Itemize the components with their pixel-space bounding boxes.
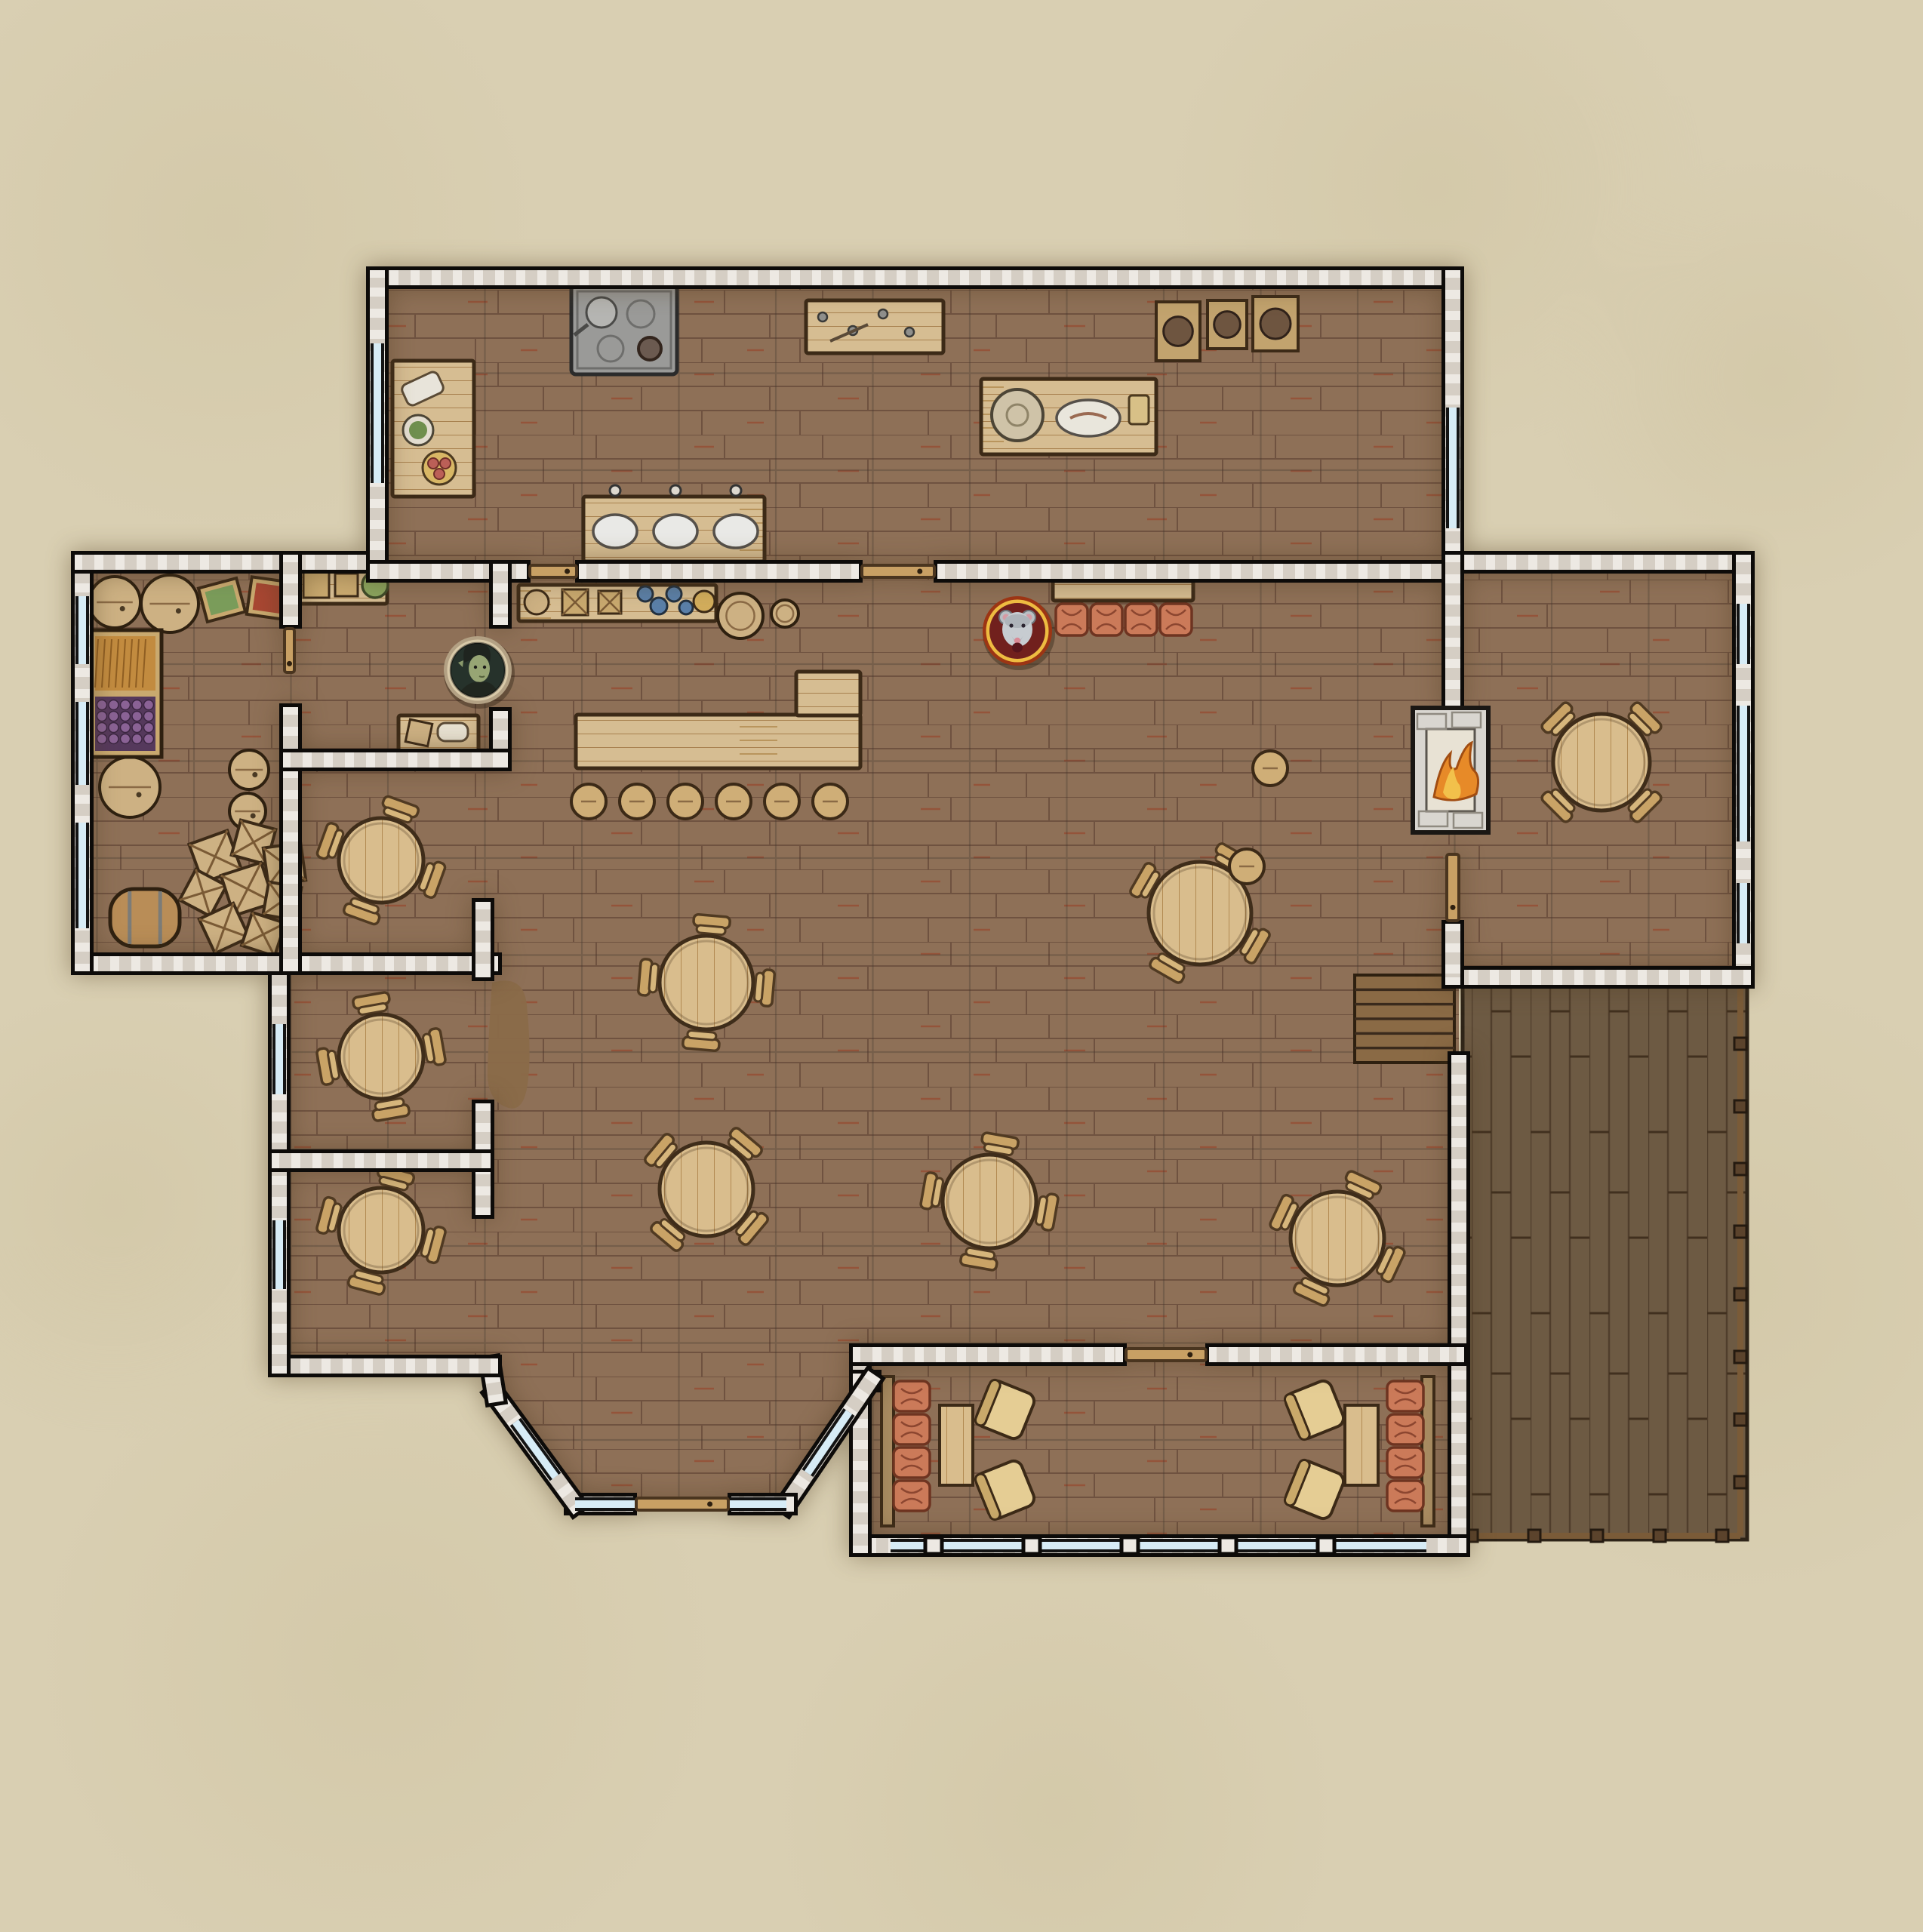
door-handle <box>565 569 570 574</box>
curing-tub <box>1057 400 1120 436</box>
railing-post <box>1734 1414 1746 1426</box>
plum <box>132 712 142 721</box>
deck-floor <box>1463 977 1747 1540</box>
pantry-box <box>405 719 432 746</box>
railing-post <box>1591 1530 1603 1542</box>
stove <box>571 285 677 374</box>
couch-cushion <box>1387 1381 1423 1411</box>
door <box>636 1498 728 1510</box>
round-table <box>1291 1192 1384 1285</box>
railing-post <box>1654 1530 1666 1542</box>
pantry-crate <box>303 572 329 598</box>
dining-table-set <box>1540 701 1663 824</box>
barrel-bung <box>176 608 181 614</box>
couch-cushion <box>894 1414 930 1444</box>
plum <box>121 712 131 721</box>
cushioned-bench <box>1053 581 1193 635</box>
railing-post <box>1734 1476 1746 1488</box>
plum <box>132 723 142 733</box>
sink-knob <box>731 485 741 496</box>
barrel-bung <box>251 814 256 819</box>
porch-post <box>925 1537 942 1554</box>
crate-bowl <box>1164 317 1193 346</box>
wash-basin <box>593 515 637 548</box>
wash-basin <box>654 515 697 548</box>
bar-counter-return <box>796 672 860 715</box>
tool-bit <box>878 309 888 318</box>
plum <box>121 734 131 744</box>
barrel-bung <box>120 606 125 611</box>
round-table <box>943 1155 1036 1248</box>
plum <box>109 723 118 733</box>
stairs-to-deck <box>1355 975 1454 1063</box>
door-handle <box>1451 905 1456 910</box>
plum <box>97 712 107 721</box>
porch-post <box>1318 1537 1334 1554</box>
fireplace <box>1413 708 1488 832</box>
plum <box>144 712 154 721</box>
coffee-table-right <box>1345 1405 1378 1485</box>
railing-post <box>1734 1288 1746 1300</box>
plum <box>97 723 107 733</box>
railing-post <box>1528 1530 1540 1542</box>
door <box>1447 854 1459 921</box>
door-handle <box>707 1502 712 1507</box>
door <box>1126 1349 1206 1361</box>
fruit <box>434 469 445 479</box>
plum <box>121 723 131 733</box>
plum <box>144 734 154 744</box>
crate-bowl <box>1260 309 1291 339</box>
chair <box>638 958 659 996</box>
plum <box>121 700 131 710</box>
sink-knob <box>670 485 681 496</box>
door-handle <box>287 661 292 666</box>
railing-post <box>1734 1351 1746 1363</box>
round-table <box>660 1143 753 1236</box>
bench-cushion <box>1091 604 1122 635</box>
plum <box>97 700 107 710</box>
chair <box>682 1030 720 1051</box>
grindstone <box>992 389 1043 441</box>
porch-post <box>1220 1537 1236 1554</box>
railing-post <box>1734 1163 1746 1175</box>
couch-cushion <box>1387 1481 1423 1511</box>
plum <box>109 712 118 721</box>
plum <box>144 723 154 733</box>
dining-table-set <box>643 1126 769 1252</box>
bench-cushion <box>1125 604 1157 635</box>
vtt-canvas[interactable] <box>0 0 1923 1932</box>
barrel-bung <box>252 772 257 777</box>
bench-cushion <box>1160 604 1192 635</box>
railing-post <box>1734 1100 1746 1112</box>
barrel-side <box>110 889 180 946</box>
tavern-map-svg <box>0 0 1923 1932</box>
drawn-blob <box>488 980 530 1108</box>
bench-cushion <box>1056 604 1088 635</box>
plum <box>109 734 118 744</box>
round-table <box>1553 714 1650 811</box>
railing-post <box>1734 1038 1746 1050</box>
barrel-bung <box>137 792 142 798</box>
pantry-scroll <box>438 723 468 741</box>
plum <box>97 734 107 744</box>
tool-bit <box>818 312 827 321</box>
porch-post <box>1121 1537 1138 1554</box>
veg-greens <box>409 421 427 439</box>
coffee-table-left <box>940 1405 973 1485</box>
round-table <box>339 818 423 903</box>
door-handle <box>1187 1352 1192 1358</box>
couch-back-left <box>882 1377 894 1526</box>
salt-box <box>1129 395 1149 424</box>
shelf-plate <box>525 590 549 614</box>
bar-counter <box>576 715 860 768</box>
bench-board <box>1053 581 1193 601</box>
chair <box>754 969 775 1007</box>
barrel-top <box>771 600 798 627</box>
round-table <box>339 1014 423 1099</box>
chair <box>693 914 731 935</box>
couch-cushion <box>894 1481 930 1511</box>
porch-deck <box>1463 975 1747 1542</box>
shelf-bottle <box>666 586 682 601</box>
couch-cushion <box>894 1447 930 1478</box>
plum <box>144 700 154 710</box>
round-table <box>339 1188 423 1272</box>
wash-basin <box>714 515 758 548</box>
sink-knob <box>610 485 620 496</box>
fruit <box>440 458 451 469</box>
tool-bit <box>905 328 914 337</box>
door <box>862 565 934 577</box>
round-table <box>660 936 753 1029</box>
shelf-bowl <box>694 591 715 612</box>
couch-cushion <box>1387 1447 1423 1478</box>
crate-bowl <box>1214 312 1241 338</box>
couch-cushion <box>894 1381 930 1411</box>
shelf-bottle <box>638 586 653 601</box>
plum <box>132 734 142 744</box>
barrel-top <box>718 593 763 638</box>
pantry-crate <box>335 574 358 596</box>
shelf-bottle <box>679 601 693 614</box>
plum <box>132 700 142 710</box>
plum <box>109 700 118 710</box>
railing-post <box>1716 1530 1728 1542</box>
porch-post <box>1023 1537 1040 1554</box>
stove-pan <box>586 297 617 328</box>
shelf-bottle <box>651 598 667 614</box>
railing-post <box>1734 1226 1746 1238</box>
stove-pot <box>638 337 661 360</box>
tool-workbench <box>806 300 943 353</box>
door-handle <box>917 569 922 574</box>
couch-cushion <box>1387 1414 1423 1444</box>
fruit <box>428 458 438 469</box>
